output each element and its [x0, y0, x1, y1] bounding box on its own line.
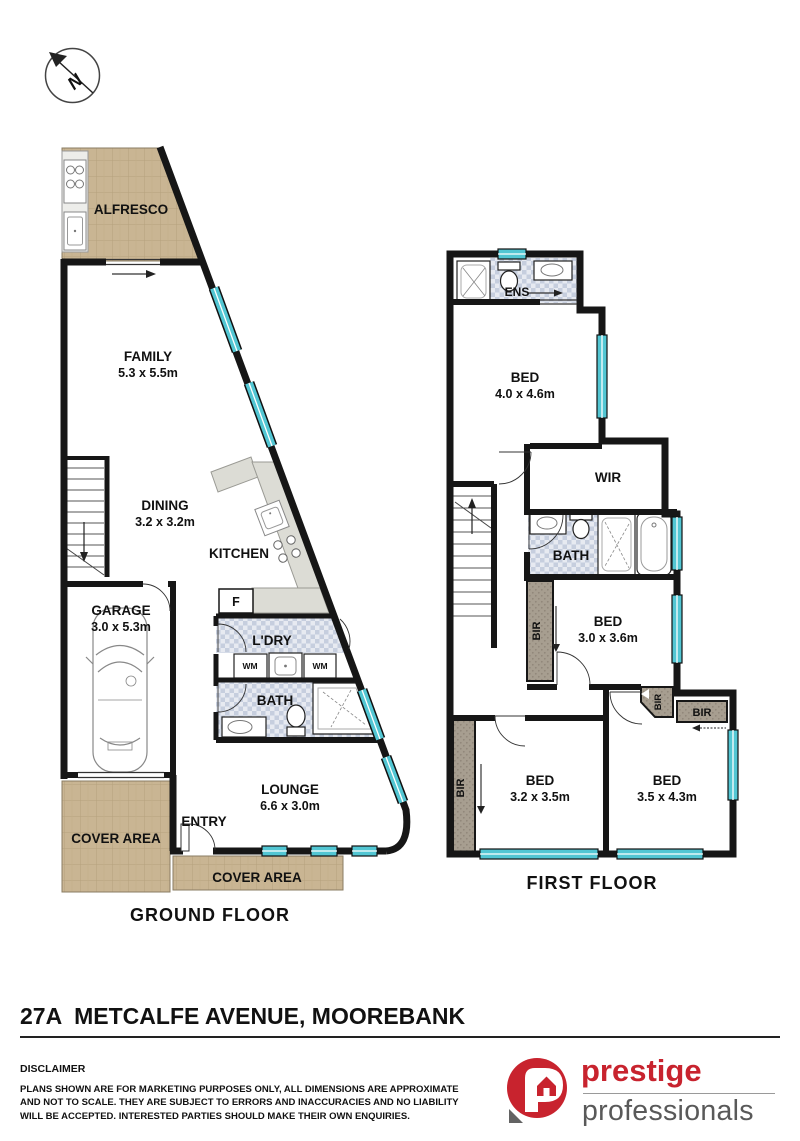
- disclaimer-title: DISCLAIMER: [20, 1063, 85, 1075]
- label-wm1: WM: [242, 661, 257, 671]
- label-bed3-dims: 3.2 x 3.5m: [510, 790, 570, 804]
- logo-brand-name: prestige: [581, 1053, 702, 1089]
- bbq-bench: [62, 151, 88, 252]
- label-fridge: F: [232, 595, 240, 609]
- label-wm2: WM: [312, 661, 327, 671]
- label-ens: ENS: [505, 285, 530, 299]
- label-dining: DINING: [141, 498, 188, 513]
- stairs-ground: [66, 468, 104, 575]
- label-bed3: BED: [526, 773, 555, 788]
- ground-floor-plan: ALFRESCO FAMILY 5.3 x 5.5m DINING 3.2 x …: [62, 147, 407, 925]
- ground-floor-title: GROUND FLOOR: [130, 905, 290, 925]
- label-bir-corner: BIR: [653, 694, 664, 711]
- label-first-bath: BATH: [553, 548, 590, 563]
- label-cover-left: COVER AREA: [71, 831, 161, 846]
- vanity-icon: [222, 717, 266, 737]
- label-bir-bed3: BIR: [455, 778, 467, 797]
- label-family: FAMILY: [124, 349, 172, 364]
- first-inner-walls: [450, 302, 677, 854]
- label-bed1-dims: 4.0 x 4.6m: [495, 387, 555, 401]
- bathtub-icon: [637, 513, 671, 575]
- first-floor-title: FIRST FLOOR: [527, 873, 658, 893]
- label-lounge-dims: 6.6 x 3.0m: [260, 799, 320, 813]
- stairs-first: [453, 496, 491, 616]
- label-wir: WIR: [595, 470, 621, 485]
- toilet-icon: [287, 705, 305, 727]
- label-bed4-dims: 3.5 x 4.3m: [637, 790, 697, 804]
- label-bir-bed2: BIR: [531, 621, 543, 640]
- label-family-dims: 5.3 x 5.5m: [118, 366, 178, 380]
- label-ground-bath: BATH: [257, 693, 294, 708]
- label-bir-bed4: BIR: [693, 707, 712, 719]
- label-lounge: LOUNGE: [261, 782, 319, 797]
- compass: N: [46, 49, 100, 103]
- logo-divider: [583, 1093, 775, 1094]
- logo-brand-subtitle: professionals: [582, 1095, 754, 1128]
- ens-toilet-tank: [498, 262, 520, 270]
- label-cover-bottom: COVER AREA: [212, 870, 302, 885]
- label-garage: GARAGE: [91, 603, 150, 618]
- agency-logo-mark-icon: [503, 1055, 575, 1127]
- label-entry: ENTRY: [181, 814, 226, 829]
- bath-toilet-icon: [573, 520, 589, 539]
- label-dining-dims: 3.2 x 3.2m: [135, 515, 195, 529]
- label-laundry: L'DRY: [252, 633, 291, 648]
- label-kitchen: KITCHEN: [209, 546, 269, 561]
- floor-plan-canvas: N: [0, 0, 800, 960]
- label-bed2-dims: 3.0 x 3.6m: [578, 631, 638, 645]
- floor-plan-page: N: [0, 0, 800, 1141]
- label-alfresco: ALFRESCO: [94, 202, 168, 217]
- agency-logo: prestige professionals: [503, 1053, 783, 1128]
- label-garage-dims: 3.0 x 5.3m: [91, 620, 151, 634]
- label-bed4: BED: [653, 773, 682, 788]
- disclaimer-body: PLANS SHOWN ARE FOR MARKETING PURPOSES O…: [20, 1083, 478, 1123]
- first-floor-plan: ENS BED 4.0 x 4.6m WIR BATH BIR BED 3.0 …: [450, 249, 738, 893]
- property-address: 27A METCALFE AVENUE, MOOREBANK: [20, 1003, 780, 1038]
- label-bed2: BED: [594, 614, 623, 629]
- label-bed1: BED: [511, 370, 540, 385]
